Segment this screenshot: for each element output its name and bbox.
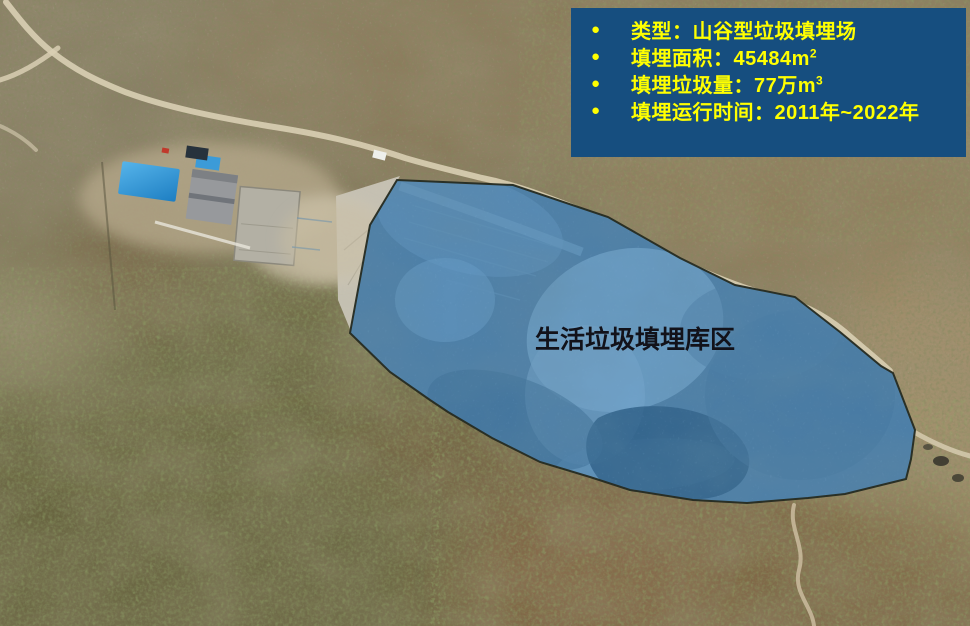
landfill-region-label: 生活垃圾填埋库区 xyxy=(535,327,735,355)
info-item: ● 类型：山谷型垃圾填埋场 xyxy=(591,16,966,43)
info-value: 2011年~2022年 xyxy=(775,102,920,124)
info-label: 填埋运行时间： xyxy=(631,102,775,124)
bullet-icon: ● xyxy=(591,22,607,37)
info-label: 填埋垃圾量： xyxy=(631,75,754,97)
info-panel: ● 类型：山谷型垃圾填埋场 ● 填埋面积：45484m2 ● 填埋垃圾量：77万… xyxy=(571,8,966,157)
info-sup: 2 xyxy=(810,46,817,60)
aerial-scene: 生活垃圾填埋库区 ● 类型：山谷型垃圾填埋场 ● 填埋面积：45484m2 ● … xyxy=(0,0,970,626)
info-value: 77万m xyxy=(754,75,816,97)
shrub-speckle-bottom-left xyxy=(0,300,400,626)
gray-building xyxy=(186,169,239,225)
info-label: 类型： xyxy=(631,21,693,43)
info-sup: 3 xyxy=(816,73,823,87)
info-item: ● 填埋运行时间：2011年~2022年 xyxy=(591,97,966,124)
bullet-icon: ● xyxy=(591,103,607,118)
info-value: 山谷型垃圾填埋场 xyxy=(693,21,857,43)
bullet-icon: ● xyxy=(591,49,607,64)
info-value: 45484m xyxy=(734,48,810,70)
info-item: ● 填埋面积：45484m2 xyxy=(591,43,966,70)
info-label: 填埋面积： xyxy=(631,48,734,70)
bullet-icon: ● xyxy=(591,76,607,91)
info-item: ● 填埋垃圾量：77万m3 xyxy=(591,70,966,97)
